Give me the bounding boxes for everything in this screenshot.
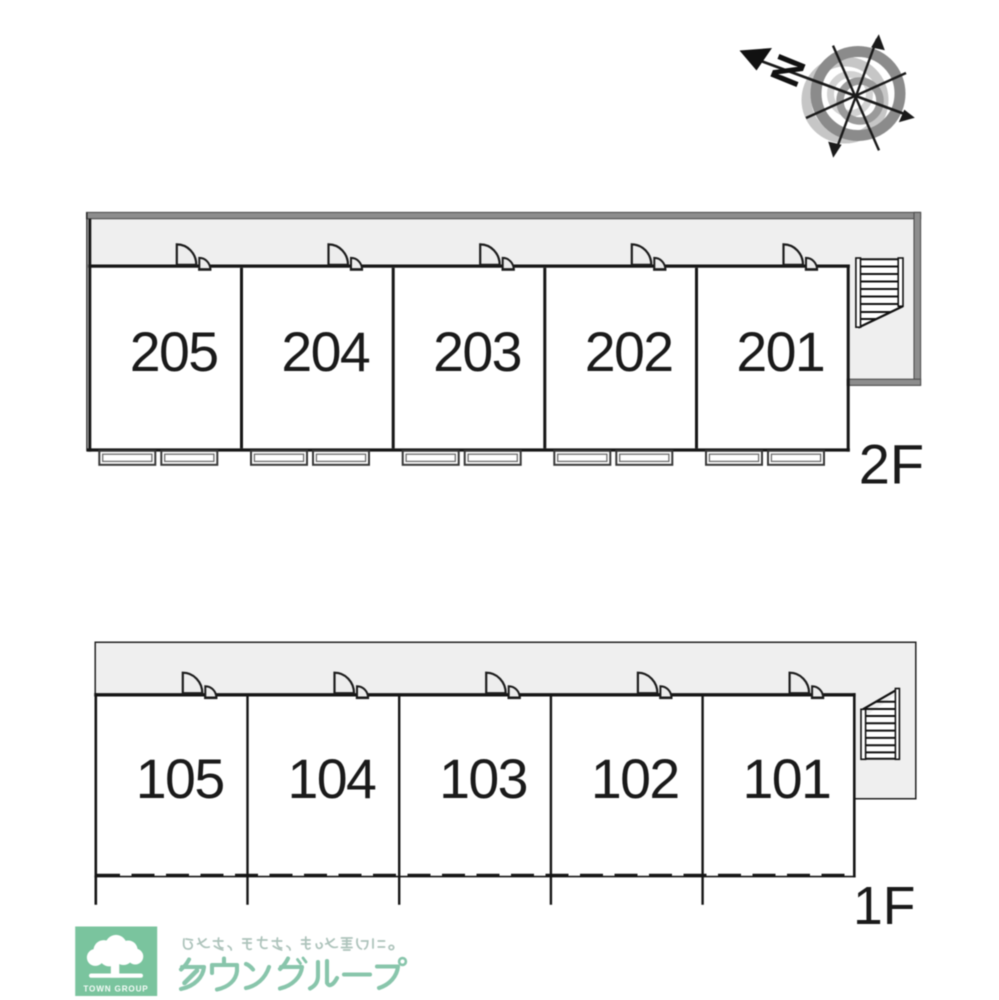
svg-text:203: 203 [433, 321, 521, 383]
svg-text:204: 204 [281, 321, 370, 383]
svg-text:101: 101 [742, 748, 830, 810]
svg-text:202: 202 [585, 321, 673, 383]
svg-text:102: 102 [591, 748, 679, 810]
svg-text:2F: 2F [859, 433, 924, 496]
svg-text:TOWN GROUP: TOWN GROUP [83, 985, 148, 994]
svg-text:105: 105 [136, 748, 224, 810]
svg-text:104: 104 [287, 748, 376, 810]
svg-text:103: 103 [439, 748, 527, 810]
svg-text:201: 201 [736, 321, 824, 383]
svg-text:205: 205 [130, 321, 218, 383]
svg-text:1F: 1F [853, 877, 915, 936]
